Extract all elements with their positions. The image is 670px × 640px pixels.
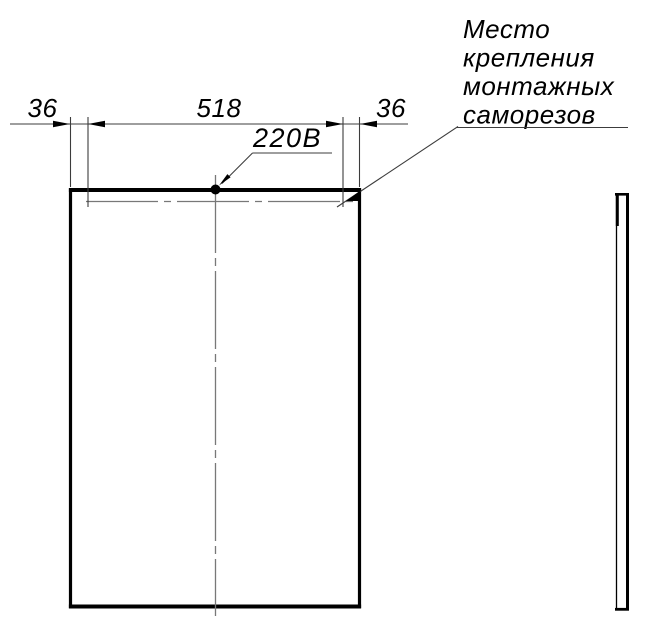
arrow-right-outer (360, 121, 377, 127)
power-label: 220В (252, 123, 322, 153)
dimension-value-center: 518 (197, 93, 242, 123)
note-line-1: Место (463, 14, 550, 44)
side-view (615, 193, 629, 611)
technical-drawing: 36 518 36 220В Место крепления монтажных… (0, 0, 670, 640)
dimension-value-left: 36 (28, 93, 58, 123)
power-callout: 220В (211, 123, 333, 195)
power-leader-arrow (219, 174, 231, 185)
power-point-dot (211, 185, 221, 195)
center-lines (86, 175, 357, 616)
note-line-3: монтажных (463, 71, 615, 101)
dimension-value-right: 36 (376, 93, 406, 123)
arrow-left-inner (88, 121, 105, 127)
note-line-4: саморезов (463, 100, 596, 130)
arrow-right-inner (326, 121, 343, 127)
note-line-2: крепления (463, 43, 595, 73)
